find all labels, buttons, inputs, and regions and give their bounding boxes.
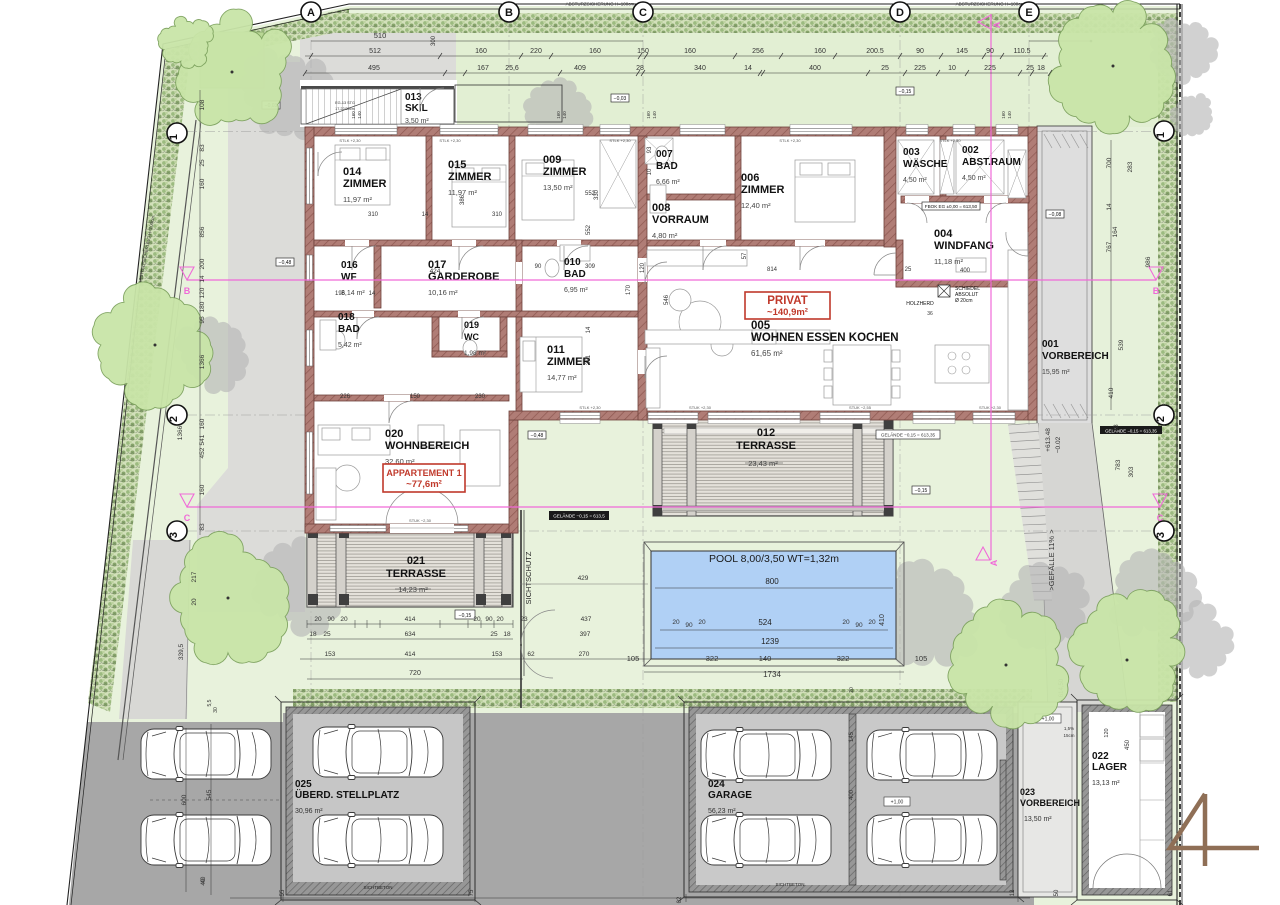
- svg-text:STLK +2,30: STLK +2,30: [779, 138, 801, 143]
- svg-text:410: 410: [879, 614, 886, 626]
- svg-text:495: 495: [368, 65, 380, 72]
- svg-text:14: 14: [422, 212, 429, 218]
- svg-text:437: 437: [581, 616, 592, 623]
- svg-text:814: 814: [767, 267, 778, 273]
- svg-text:145: 145: [849, 731, 855, 742]
- svg-text:14: 14: [744, 65, 752, 72]
- svg-text:160: 160: [351, 111, 356, 119]
- svg-text:3: 3: [168, 532, 180, 538]
- svg-text:WC: WC: [464, 332, 479, 342]
- svg-text:767: 767: [1106, 241, 1113, 252]
- svg-text:510: 510: [374, 31, 387, 40]
- svg-text:010: 010: [564, 257, 581, 268]
- svg-text:61,65 m²: 61,65 m²: [751, 349, 783, 358]
- svg-text:D: D: [896, 7, 904, 19]
- svg-text:167: 167: [477, 65, 489, 72]
- svg-text:GELÄNDE −0,15 = 613,5: GELÄNDE −0,15 = 613,5: [553, 513, 605, 519]
- svg-text:4,50 m²: 4,50 m²: [903, 177, 927, 184]
- svg-text:VORBEREICH: VORBEREICH: [1042, 351, 1109, 362]
- svg-text:+1,00: +1,00: [1042, 717, 1055, 723]
- svg-text:02: 02: [677, 896, 683, 903]
- svg-text:10: 10: [647, 168, 653, 175]
- svg-text:STUK −2,30: STUK −2,30: [409, 518, 432, 523]
- svg-text:007: 007: [656, 149, 673, 160]
- svg-text:11,18 m²: 11,18 m²: [934, 257, 964, 266]
- svg-text:Ø 20cm: Ø 20cm: [955, 298, 973, 304]
- svg-text:012: 012: [757, 427, 775, 439]
- svg-text:004: 004: [934, 228, 953, 240]
- svg-text:217: 217: [191, 571, 198, 582]
- svg-text:545: 545: [206, 789, 213, 800]
- svg-text:414: 414: [405, 616, 416, 623]
- svg-text:30: 30: [213, 707, 219, 713]
- svg-text:13,13 m²: 13,13 m²: [1092, 780, 1120, 787]
- svg-text:021: 021: [407, 555, 425, 567]
- svg-text:23,43 m²: 23,43 m²: [748, 459, 778, 468]
- svg-text:300: 300: [431, 35, 437, 46]
- svg-text:014: 014: [343, 166, 362, 178]
- svg-text:303: 303: [1128, 466, 1135, 477]
- svg-text:1: 1: [1155, 132, 1167, 138]
- svg-text:20: 20: [314, 616, 322, 623]
- svg-text:160: 160: [589, 48, 601, 55]
- svg-text:12,40 m²: 12,40 m²: [741, 201, 771, 210]
- svg-text:VORBEREICH: VORBEREICH: [1020, 798, 1080, 808]
- svg-text:140: 140: [1007, 111, 1012, 119]
- svg-text:56,23 m²: 56,23 m²: [708, 808, 736, 815]
- svg-text:539: 539: [1118, 339, 1125, 350]
- svg-text:BAD: BAD: [564, 269, 586, 280]
- svg-text:20: 20: [191, 598, 198, 606]
- svg-text:STLK +2,30: STLK +2,30: [609, 138, 631, 143]
- svg-text:196: 196: [335, 291, 346, 297]
- svg-text:STLK +2,30: STLK +2,30: [939, 138, 961, 143]
- svg-text:1,98 m²: 1,98 m²: [464, 350, 487, 357]
- svg-text:28: 28: [636, 65, 644, 72]
- svg-text:B: B: [184, 286, 191, 296]
- svg-text:14: 14: [369, 291, 376, 297]
- svg-text:STLK +2,30: STLK +2,30: [439, 138, 461, 143]
- svg-text:022: 022: [1092, 751, 1109, 762]
- svg-text:5,5: 5,5: [207, 699, 213, 706]
- svg-text:18: 18: [503, 631, 511, 638]
- svg-text:153: 153: [325, 651, 336, 658]
- svg-text:−0,15: −0,15: [899, 89, 912, 95]
- svg-text:283: 283: [1127, 161, 1134, 172]
- svg-text:1734: 1734: [763, 670, 781, 679]
- svg-text:90: 90: [535, 264, 542, 270]
- svg-text:6,95 m²: 6,95 m²: [564, 287, 588, 294]
- svg-text:512: 512: [369, 48, 381, 55]
- svg-text:008: 008: [652, 202, 670, 214]
- svg-text:93: 93: [647, 146, 653, 153]
- svg-text:ZIMMER: ZIMMER: [343, 178, 386, 190]
- svg-text:310: 310: [368, 212, 379, 218]
- svg-text:ABSTURZSICHERUNG H=100cm: ABSTURZSICHERUNG H=100cm: [566, 2, 635, 7]
- svg-text:20: 20: [842, 619, 850, 626]
- svg-text:424: 424: [430, 268, 441, 275]
- svg-text:40: 40: [201, 876, 207, 883]
- svg-text:25: 25: [881, 65, 889, 72]
- svg-text:~77,6m²: ~77,6m²: [406, 479, 442, 490]
- svg-text:024: 024: [708, 779, 725, 790]
- svg-text:552: 552: [586, 224, 592, 235]
- svg-text:TERRASSE: TERRASSE: [386, 568, 446, 580]
- svg-text:25: 25: [905, 267, 912, 273]
- svg-text:36: 36: [927, 311, 933, 317]
- svg-text:A: A: [307, 7, 315, 19]
- svg-text:WOHNEN ESSEN KOCHEN: WOHNEN ESSEN KOCHEN: [751, 332, 899, 344]
- svg-text:14,23 m²: 14,23 m²: [398, 585, 428, 594]
- svg-text:220: 220: [530, 48, 542, 55]
- svg-text:E: E: [1025, 7, 1032, 19]
- svg-text:90: 90: [986, 48, 994, 55]
- svg-text:−0,48: −0,48: [279, 260, 292, 266]
- svg-text:~140,9m²: ~140,9m²: [767, 307, 808, 318]
- svg-text:3,50 m²: 3,50 m²: [405, 118, 429, 125]
- svg-text:SICHTBETON: SICHTBETON: [364, 885, 393, 890]
- svg-text:006: 006: [741, 172, 759, 184]
- svg-text:001: 001: [1042, 339, 1059, 350]
- svg-text:STUK −2,55: STUK −2,55: [849, 405, 872, 410]
- svg-text:230: 230: [475, 394, 486, 400]
- svg-text:+613.48: +613.48: [1045, 428, 1052, 452]
- svg-text:309: 309: [585, 264, 596, 270]
- svg-text:4,50 m²: 4,50 m²: [962, 175, 986, 182]
- svg-text:005: 005: [751, 320, 771, 332]
- svg-text:ZIMMER: ZIMMER: [448, 171, 491, 183]
- svg-text:150: 150: [410, 394, 421, 400]
- svg-text:10: 10: [948, 65, 956, 72]
- svg-text:2: 2: [168, 416, 180, 422]
- svg-text:B: B: [1153, 286, 1160, 296]
- svg-text:339,5: 339,5: [178, 643, 185, 660]
- svg-text:160: 160: [646, 111, 651, 119]
- svg-text:−0.02: −0.02: [1055, 436, 1062, 453]
- svg-text:20: 20: [698, 619, 706, 626]
- svg-text:ZIMMER: ZIMMER: [741, 184, 784, 196]
- svg-text:13,50 m²: 13,50 m²: [543, 183, 573, 192]
- svg-text:SICHTSCHUTZ: SICHTSCHUTZ: [524, 551, 533, 604]
- svg-text:ZIMMER: ZIMMER: [543, 166, 586, 178]
- svg-text:020: 020: [385, 428, 403, 440]
- svg-text:50: 50: [1054, 889, 1060, 896]
- svg-text:18: 18: [309, 631, 317, 638]
- svg-text:ABSTURZSICHERUNG H=100cm: ABSTURZSICHERUNG H=100cm: [956, 2, 1025, 7]
- svg-text:018: 018: [338, 312, 355, 323]
- svg-text:160: 160: [814, 48, 826, 55]
- svg-text:A: A: [992, 21, 1002, 28]
- svg-text:322: 322: [706, 654, 719, 663]
- svg-text:GARAGE: GARAGE: [708, 790, 752, 801]
- svg-text:110.5: 110.5: [1014, 48, 1031, 55]
- svg-text:986: 986: [1145, 256, 1152, 267]
- svg-text:120: 120: [640, 262, 646, 273]
- svg-text:17,22/30cm: 17,22/30cm: [335, 107, 355, 111]
- svg-text:20: 20: [473, 616, 481, 623]
- svg-text:160: 160: [475, 48, 487, 55]
- svg-text:11,97 m²: 11,97 m²: [343, 195, 373, 204]
- svg-text:25,6: 25,6: [505, 65, 519, 72]
- svg-text:WF: WF: [341, 272, 357, 283]
- svg-text:14: 14: [586, 326, 592, 333]
- svg-text:>GEFÄLLE 11% >: >GEFÄLLE 11% >: [1047, 529, 1056, 591]
- svg-text:400: 400: [809, 65, 821, 72]
- svg-text:+1,00: +1,00: [891, 800, 904, 806]
- svg-text:3: 3: [1155, 532, 1167, 538]
- svg-text:1: 1: [168, 134, 180, 140]
- svg-text:90: 90: [916, 48, 924, 55]
- svg-text:1,5%: 1,5%: [1064, 726, 1074, 731]
- svg-text:HOLZHERD: HOLZHERD: [906, 301, 934, 307]
- svg-text:C: C: [184, 513, 191, 523]
- svg-text:ZIMMER: ZIMMER: [547, 356, 590, 368]
- svg-text:552: 552: [585, 191, 596, 197]
- svg-text:200.5: 200.5: [866, 48, 884, 55]
- svg-text:003: 003: [903, 147, 920, 158]
- svg-text:140: 140: [652, 111, 657, 119]
- svg-text:14,77 m²: 14,77 m²: [547, 373, 577, 382]
- svg-text:BAD: BAD: [338, 324, 360, 335]
- svg-text:WOHNBEREICH: WOHNBEREICH: [385, 440, 469, 452]
- svg-text:226: 226: [340, 394, 351, 400]
- svg-text:25: 25: [490, 631, 498, 638]
- svg-text:2: 2: [1155, 416, 1167, 422]
- svg-text:400: 400: [960, 268, 971, 274]
- svg-text:61: 61: [1168, 889, 1174, 896]
- svg-text:15cm: 15cm: [1063, 733, 1074, 738]
- svg-text:62: 62: [527, 651, 535, 658]
- svg-text:160: 160: [1001, 111, 1006, 119]
- svg-text:800: 800: [765, 577, 779, 586]
- svg-text:STLK +2,30: STLK +2,30: [579, 405, 601, 410]
- svg-text:256: 256: [752, 48, 764, 55]
- svg-text:C: C: [639, 7, 647, 19]
- svg-text:−0,03: −0,03: [614, 96, 627, 102]
- svg-text:011: 011: [547, 344, 565, 356]
- svg-text:20: 20: [849, 687, 855, 693]
- svg-text:140: 140: [357, 111, 362, 119]
- svg-text:546: 546: [664, 294, 670, 305]
- svg-text:140: 140: [562, 111, 567, 119]
- svg-text:429: 429: [578, 575, 589, 582]
- svg-text:023: 023: [1020, 787, 1035, 797]
- svg-text:019: 019: [464, 320, 479, 330]
- svg-text:FBOK EG ±0,00 = 613,50: FBOK EG ±0,00 = 613,50: [925, 204, 978, 209]
- svg-text:025: 025: [295, 779, 312, 790]
- svg-text:30,96 m²: 30,96 m²: [295, 808, 323, 815]
- svg-text:410: 410: [1108, 387, 1115, 398]
- svg-text:322: 322: [837, 654, 850, 663]
- svg-text:153: 153: [492, 651, 503, 658]
- svg-text:BAD: BAD: [656, 161, 678, 172]
- svg-text:5,42 m²: 5,42 m²: [338, 342, 362, 349]
- svg-text:160: 160: [556, 111, 561, 119]
- svg-text:SICHTBETON: SICHTBETON: [776, 882, 805, 887]
- svg-text:VORRAUM: VORRAUM: [652, 214, 709, 226]
- svg-text:18: 18: [1113, 424, 1120, 432]
- svg-text:409: 409: [574, 65, 586, 72]
- svg-text:002: 002: [962, 145, 979, 156]
- svg-text:APPARTEMENT 1: APPARTEMENT 1: [386, 468, 461, 478]
- svg-text:145: 145: [956, 48, 968, 55]
- svg-text:POOL 8,00/3,50 WT=1,32m: POOL 8,00/3,50 WT=1,32m: [709, 553, 839, 565]
- svg-text:GELÄNDE −0,15 = 613,35: GELÄNDE −0,15 = 613,35: [881, 432, 936, 438]
- svg-text:−0,15: −0,15: [459, 613, 472, 619]
- svg-text:−0,48: −0,48: [531, 433, 544, 439]
- svg-text:20: 20: [340, 616, 348, 623]
- svg-text:WÄSCHE: WÄSCHE: [903, 157, 948, 170]
- svg-text:PRIVAT: PRIVAT: [767, 295, 807, 307]
- svg-text:270: 270: [579, 651, 590, 658]
- svg-text:6,66 m²: 6,66 m²: [656, 179, 680, 186]
- svg-text:ÜBERD. STELLPLATZ: ÜBERD. STELLPLATZ: [295, 788, 399, 801]
- svg-text:783: 783: [1115, 459, 1122, 470]
- svg-text:361: 361: [586, 354, 592, 365]
- svg-text:90: 90: [685, 622, 693, 629]
- svg-text:B: B: [505, 7, 513, 19]
- svg-text:STUK +2,30: STUK +2,30: [689, 405, 712, 410]
- svg-text:105: 105: [627, 654, 640, 663]
- svg-text:−0,08: −0,08: [1049, 212, 1062, 218]
- svg-text:90: 90: [485, 616, 493, 623]
- svg-text:397: 397: [580, 631, 591, 638]
- svg-text:TERRASSE: TERRASSE: [736, 440, 796, 452]
- svg-text:140: 140: [759, 654, 772, 663]
- svg-text:SKIL: SKIL: [405, 103, 428, 114]
- svg-text:310: 310: [492, 212, 503, 218]
- svg-text:57: 57: [742, 252, 748, 259]
- svg-text:10,16 m²: 10,16 m²: [428, 288, 458, 297]
- svg-text:90: 90: [855, 622, 863, 629]
- svg-text:14: 14: [1106, 203, 1113, 211]
- svg-text:LAGER: LAGER: [1092, 762, 1128, 773]
- svg-text:18: 18: [1037, 65, 1045, 72]
- svg-text:20: 20: [672, 619, 680, 626]
- svg-text:105: 105: [915, 654, 928, 663]
- svg-text:STLK +2,30: STLK +2,30: [339, 138, 361, 143]
- svg-text:164: 164: [1112, 226, 1119, 237]
- svg-text:−0,15: −0,15: [915, 488, 928, 494]
- svg-text:700: 700: [1106, 157, 1113, 168]
- svg-text:A: A: [989, 559, 999, 566]
- svg-text:340: 340: [694, 65, 706, 72]
- svg-text:12: 12: [1010, 889, 1016, 896]
- svg-text:25: 25: [323, 631, 331, 638]
- svg-text:015: 015: [448, 159, 466, 171]
- svg-text:90: 90: [327, 616, 335, 623]
- svg-text:WINDFANG: WINDFANG: [934, 240, 994, 252]
- svg-text:1239: 1239: [761, 637, 779, 646]
- svg-text:400: 400: [849, 789, 855, 800]
- svg-text:013: 013: [405, 92, 422, 103]
- svg-text:1366: 1366: [177, 425, 184, 440]
- svg-text:524: 524: [758, 618, 772, 627]
- svg-text:720: 720: [409, 670, 421, 677]
- svg-text:20: 20: [496, 616, 504, 623]
- svg-text:120: 120: [1104, 728, 1110, 737]
- svg-text:20: 20: [868, 619, 876, 626]
- svg-text:170: 170: [626, 284, 632, 295]
- svg-text:STUK +2,30: STUK +2,30: [979, 405, 1002, 410]
- svg-text:25: 25: [1026, 65, 1034, 72]
- svg-text:386: 386: [460, 194, 466, 205]
- svg-text:450: 450: [1125, 739, 1131, 750]
- svg-text:EG-13 STG: EG-13 STG: [335, 101, 355, 105]
- svg-text:414: 414: [405, 651, 416, 658]
- svg-text:160: 160: [684, 48, 696, 55]
- svg-text:016: 016: [341, 260, 358, 271]
- svg-text:009: 009: [543, 154, 561, 166]
- svg-text:23: 23: [520, 616, 528, 623]
- svg-text:634: 634: [405, 631, 416, 638]
- svg-text:75: 75: [469, 889, 475, 896]
- svg-text:4,80 m²: 4,80 m²: [652, 231, 678, 240]
- svg-text:15,95 m²: 15,95 m²: [1042, 369, 1070, 376]
- svg-text:225: 225: [984, 65, 996, 72]
- svg-text:13,50 m²: 13,50 m²: [1024, 816, 1052, 823]
- svg-text:225: 225: [914, 65, 926, 72]
